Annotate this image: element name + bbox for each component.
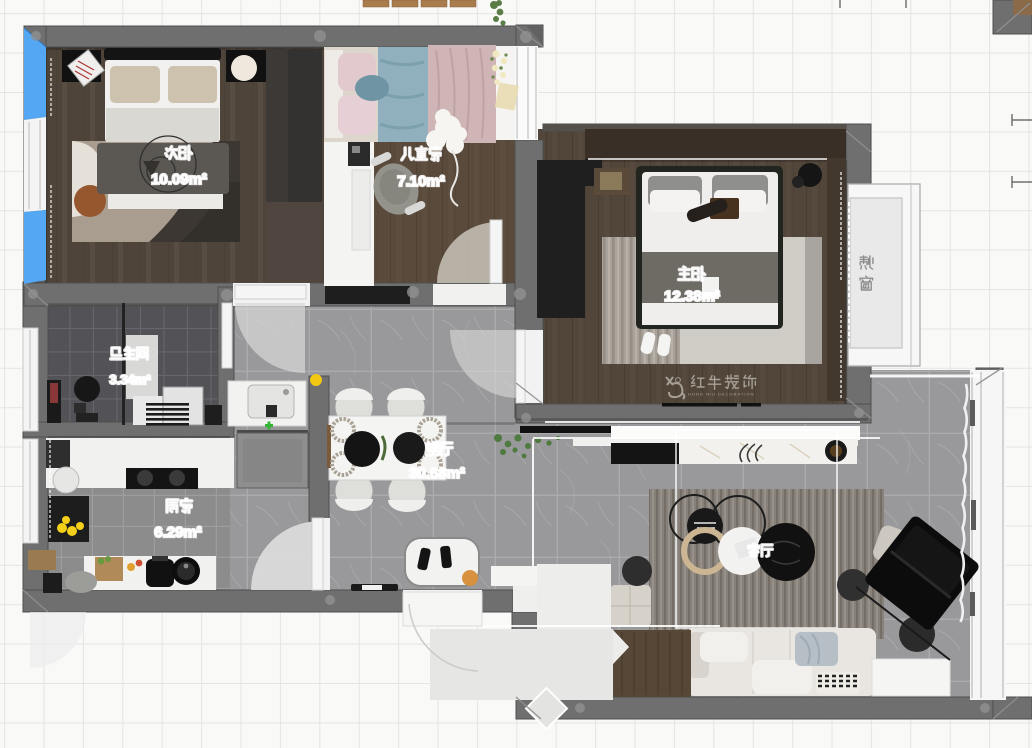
svg-text:6.29m²: 6.29m² <box>154 524 202 541</box>
svg-text:30.68m²: 30.68m² <box>409 465 465 482</box>
svg-text:10.09m²: 10.09m² <box>151 171 207 188</box>
svg-text:HONG NIU DECORATION: HONG NIU DECORATION <box>688 392 754 397</box>
svg-text:3.34m²: 3.34m² <box>109 372 151 387</box>
svg-text:12.38m²: 12.38m² <box>664 288 720 305</box>
svg-text:7.10m²: 7.10m² <box>397 173 445 190</box>
